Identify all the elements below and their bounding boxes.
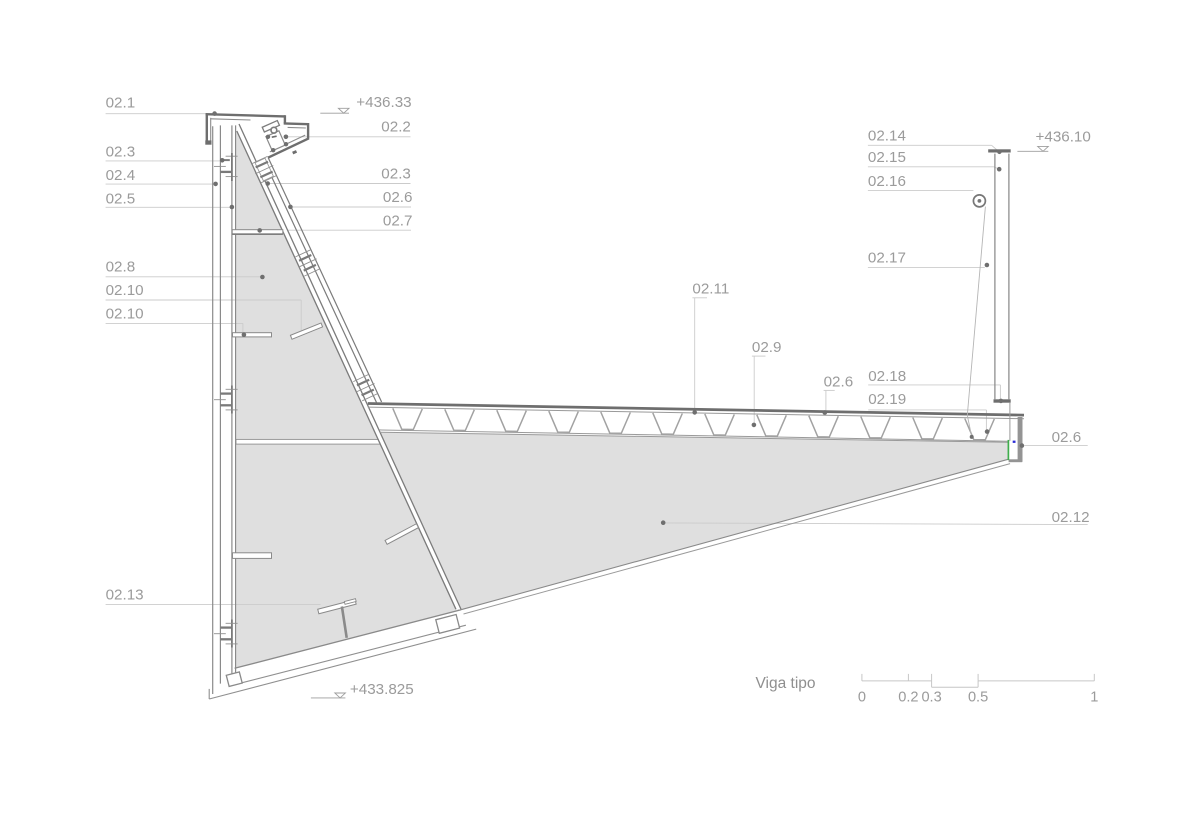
svg-text:02.1: 02.1: [106, 94, 136, 111]
svg-text:02.10: 02.10: [106, 306, 144, 323]
svg-text:02.18: 02.18: [868, 368, 906, 385]
svg-text:02.15: 02.15: [868, 149, 906, 166]
svg-text:02.5: 02.5: [106, 190, 136, 207]
svg-text:02.19: 02.19: [868, 391, 906, 408]
svg-text:02.4: 02.4: [106, 167, 136, 184]
svg-text:02.12: 02.12: [1052, 509, 1090, 526]
svg-text:02.8: 02.8: [106, 259, 136, 276]
svg-text:02.3: 02.3: [381, 166, 411, 183]
svg-text:02.6: 02.6: [1052, 429, 1082, 446]
svg-text:0: 0: [858, 690, 866, 706]
svg-text:02.11: 02.11: [692, 281, 729, 298]
svg-text:+433.825: +433.825: [350, 681, 414, 698]
svg-text:02.16: 02.16: [868, 173, 906, 190]
svg-text:02.7: 02.7: [383, 212, 413, 229]
svg-text:02.3: 02.3: [106, 144, 136, 161]
svg-text:0.5: 0.5: [968, 690, 988, 706]
svg-text:02.14: 02.14: [868, 128, 906, 145]
svg-text:0.3: 0.3: [921, 690, 941, 706]
svg-text:+436.33: +436.33: [356, 94, 411, 111]
svg-text:02.2: 02.2: [381, 119, 411, 136]
svg-text:02.9: 02.9: [752, 339, 782, 356]
svg-text:+436.10: +436.10: [1036, 128, 1091, 145]
svg-text:02.6: 02.6: [824, 374, 854, 391]
svg-text:02.13: 02.13: [106, 587, 144, 604]
svg-text:0.2: 0.2: [898, 690, 918, 706]
svg-text:02.6: 02.6: [383, 189, 413, 206]
svg-text:02.17: 02.17: [868, 250, 906, 267]
svg-text:Viga tipo: Viga tipo: [756, 675, 816, 692]
svg-text:1: 1: [1090, 690, 1098, 706]
svg-text:02.10: 02.10: [106, 282, 144, 299]
